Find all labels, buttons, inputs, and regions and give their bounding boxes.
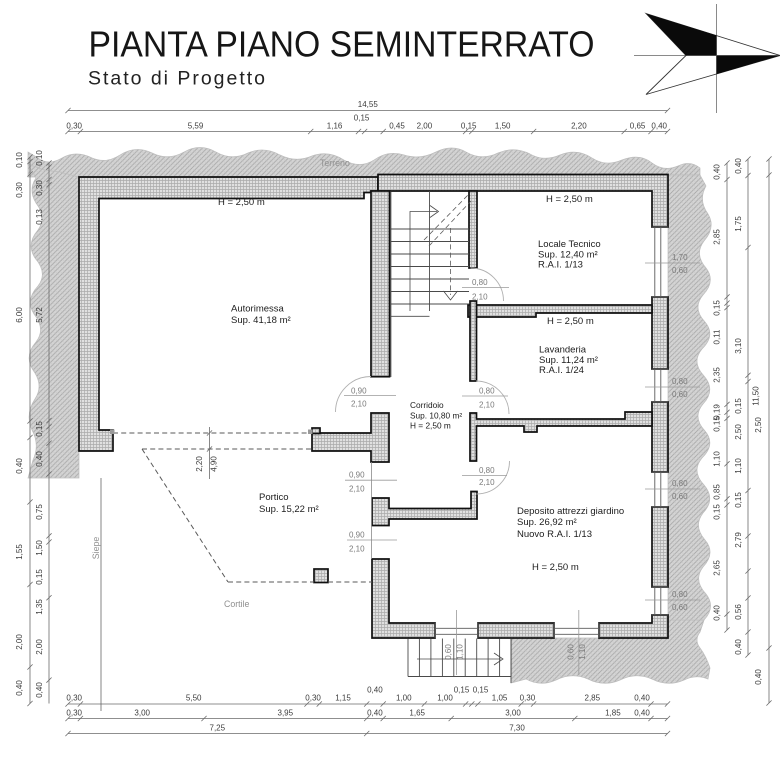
svg-text:2,10: 2,10 bbox=[479, 401, 495, 410]
svg-text:2,20: 2,20 bbox=[571, 122, 587, 131]
svg-text:0,80: 0,80 bbox=[672, 377, 688, 386]
svg-text:1,10: 1,10 bbox=[456, 644, 465, 660]
svg-text:1,35: 1,35 bbox=[35, 599, 44, 615]
svg-text:3,10: 3,10 bbox=[734, 338, 743, 354]
svg-text:14,55: 14,55 bbox=[358, 100, 379, 109]
svg-text:0,60: 0,60 bbox=[567, 644, 576, 660]
svg-text:0,85: 0,85 bbox=[713, 484, 722, 500]
svg-text:Sup. 41,18 m²: Sup. 41,18 m² bbox=[231, 315, 291, 326]
svg-text:0,15: 0,15 bbox=[713, 300, 722, 316]
svg-text:2,65: 2,65 bbox=[713, 560, 722, 576]
svg-text:0,80: 0,80 bbox=[672, 590, 688, 599]
svg-text:H = 2,50 m: H = 2,50 m bbox=[218, 197, 265, 208]
svg-text:0,15: 0,15 bbox=[473, 686, 489, 695]
svg-text:0,40: 0,40 bbox=[367, 709, 383, 718]
svg-text:Autorimessa: Autorimessa bbox=[231, 304, 285, 315]
svg-text:0,90: 0,90 bbox=[349, 471, 365, 480]
svg-text:2,00: 2,00 bbox=[15, 634, 24, 650]
svg-text:0,40: 0,40 bbox=[367, 686, 383, 695]
svg-text:3,95: 3,95 bbox=[278, 709, 294, 718]
svg-text:0,90: 0,90 bbox=[349, 531, 365, 540]
svg-text:0,90: 0,90 bbox=[351, 387, 367, 396]
svg-text:0,56: 0,56 bbox=[734, 604, 743, 620]
svg-text:1,10: 1,10 bbox=[578, 644, 587, 660]
svg-text:0,15: 0,15 bbox=[713, 416, 722, 432]
svg-text:1,00: 1,00 bbox=[437, 694, 453, 703]
svg-text:Sup. 10,80 m²: Sup. 10,80 m² bbox=[410, 411, 462, 421]
svg-text:PIANTA PIANO SEMINTERRATO: PIANTA PIANO SEMINTERRATO bbox=[89, 24, 595, 65]
svg-text:2,10: 2,10 bbox=[349, 545, 365, 554]
svg-text:0,30: 0,30 bbox=[66, 709, 82, 718]
svg-text:5,50: 5,50 bbox=[186, 694, 202, 703]
svg-text:0,15: 0,15 bbox=[35, 569, 44, 585]
svg-text:0,40: 0,40 bbox=[734, 639, 743, 655]
svg-text:0,80: 0,80 bbox=[479, 387, 495, 396]
svg-text:0,40: 0,40 bbox=[713, 164, 722, 180]
svg-text:2,50: 2,50 bbox=[734, 424, 743, 440]
svg-text:Nuovo R.A.I. 1/13: Nuovo R.A.I. 1/13 bbox=[517, 529, 592, 540]
svg-text:0,30: 0,30 bbox=[15, 182, 24, 198]
svg-text:0,65: 0,65 bbox=[630, 122, 646, 131]
svg-text:2,85: 2,85 bbox=[585, 694, 601, 703]
svg-text:0,30: 0,30 bbox=[305, 694, 321, 703]
svg-text:1,00: 1,00 bbox=[396, 694, 412, 703]
svg-text:2,35: 2,35 bbox=[713, 367, 722, 383]
svg-text:1,05: 1,05 bbox=[492, 694, 508, 703]
svg-text:0,75: 0,75 bbox=[35, 504, 44, 520]
svg-text:R.A.I. 1/13: R.A.I. 1/13 bbox=[538, 260, 583, 271]
svg-text:0,10: 0,10 bbox=[15, 152, 24, 168]
svg-text:Corridoio: Corridoio bbox=[410, 400, 444, 410]
svg-text:Sup. 26,92 m²: Sup. 26,92 m² bbox=[517, 517, 577, 528]
svg-text:2,10: 2,10 bbox=[479, 478, 495, 487]
svg-text:0,15: 0,15 bbox=[734, 492, 743, 508]
svg-text:1,16: 1,16 bbox=[327, 122, 343, 131]
svg-text:1,85: 1,85 bbox=[605, 709, 621, 718]
svg-text:1,75: 1,75 bbox=[734, 216, 743, 232]
svg-text:3,00: 3,00 bbox=[505, 709, 521, 718]
svg-text:1,65: 1,65 bbox=[409, 709, 425, 718]
svg-text:Portico: Portico bbox=[259, 492, 289, 503]
svg-text:2,10: 2,10 bbox=[351, 400, 367, 409]
svg-text:0,40: 0,40 bbox=[734, 158, 743, 174]
svg-text:5,59: 5,59 bbox=[188, 122, 204, 131]
svg-text:2,79: 2,79 bbox=[734, 532, 743, 548]
svg-text:Locale Tecnico: Locale Tecnico bbox=[538, 239, 601, 250]
svg-text:Sup. 15,22 m²: Sup. 15,22 m² bbox=[259, 504, 319, 515]
svg-text:0,30: 0,30 bbox=[520, 694, 536, 703]
svg-text:0,15: 0,15 bbox=[35, 421, 44, 437]
svg-text:0,40: 0,40 bbox=[15, 458, 24, 474]
svg-text:R.A.I. 1/24: R.A.I. 1/24 bbox=[539, 365, 584, 376]
svg-text:0,15: 0,15 bbox=[354, 114, 370, 123]
svg-text:0,60: 0,60 bbox=[672, 492, 688, 501]
svg-text:Stato di Progetto: Stato di Progetto bbox=[88, 68, 265, 90]
svg-text:5,72: 5,72 bbox=[35, 307, 44, 323]
svg-text:4,90: 4,90 bbox=[210, 456, 219, 472]
svg-text:1,50: 1,50 bbox=[35, 540, 44, 556]
svg-text:2,00: 2,00 bbox=[35, 639, 44, 655]
svg-text:H = 2,50 m: H = 2,50 m bbox=[547, 316, 594, 327]
svg-text:0,15: 0,15 bbox=[713, 504, 722, 520]
svg-text:0,80: 0,80 bbox=[672, 479, 688, 488]
svg-text:1,55: 1,55 bbox=[15, 544, 24, 560]
svg-text:1,50: 1,50 bbox=[495, 122, 511, 131]
svg-text:0,60: 0,60 bbox=[444, 644, 453, 660]
svg-text:Lavanderia: Lavanderia bbox=[539, 345, 587, 356]
svg-text:2,10: 2,10 bbox=[349, 485, 365, 494]
svg-text:H = 2,50 m: H = 2,50 m bbox=[410, 421, 451, 431]
svg-text:0,40: 0,40 bbox=[35, 451, 44, 467]
svg-text:0,40: 0,40 bbox=[15, 680, 24, 696]
svg-text:1,10: 1,10 bbox=[713, 451, 722, 467]
svg-text:0,80: 0,80 bbox=[479, 466, 495, 475]
svg-text:Deposito attrezzi giardino: Deposito attrezzi giardino bbox=[517, 506, 624, 517]
svg-text:0,15: 0,15 bbox=[454, 686, 470, 695]
svg-text:2,85: 2,85 bbox=[713, 229, 722, 245]
svg-text:7,25: 7,25 bbox=[210, 724, 226, 733]
svg-text:0,30: 0,30 bbox=[66, 694, 82, 703]
svg-text:0,80: 0,80 bbox=[472, 278, 488, 287]
svg-text:1,70: 1,70 bbox=[672, 253, 688, 262]
svg-text:Siepe: Siepe bbox=[91, 537, 101, 560]
svg-text:H = 2,50 m: H = 2,50 m bbox=[546, 194, 593, 205]
svg-text:0,45: 0,45 bbox=[389, 122, 405, 131]
svg-text:11,50: 11,50 bbox=[752, 386, 761, 406]
svg-text:Terreno: Terreno bbox=[320, 158, 350, 168]
svg-text:Cortile: Cortile bbox=[224, 599, 250, 609]
svg-text:0,13: 0,13 bbox=[35, 209, 44, 225]
svg-text:0,15: 0,15 bbox=[734, 398, 743, 414]
svg-text:0,60: 0,60 bbox=[672, 266, 688, 275]
svg-text:6,00: 6,00 bbox=[15, 307, 24, 323]
svg-text:7,30: 7,30 bbox=[509, 724, 525, 733]
svg-text:0,15: 0,15 bbox=[461, 122, 477, 131]
svg-text:0,40: 0,40 bbox=[713, 605, 722, 621]
svg-text:0,11: 0,11 bbox=[713, 329, 722, 345]
svg-text:H = 2,50 m: H = 2,50 m bbox=[532, 562, 579, 573]
svg-text:2,50: 2,50 bbox=[754, 417, 763, 433]
svg-text:0,60: 0,60 bbox=[672, 390, 688, 399]
svg-text:2,00: 2,00 bbox=[417, 122, 433, 131]
svg-text:0,40: 0,40 bbox=[651, 122, 667, 131]
svg-text:1,15: 1,15 bbox=[335, 694, 351, 703]
svg-text:0,60: 0,60 bbox=[672, 603, 688, 612]
svg-text:0,40: 0,40 bbox=[35, 682, 44, 698]
svg-text:0,30: 0,30 bbox=[35, 180, 44, 196]
svg-text:0,30: 0,30 bbox=[66, 122, 82, 131]
svg-text:3,00: 3,00 bbox=[134, 709, 150, 718]
svg-text:2,10: 2,10 bbox=[472, 293, 488, 302]
svg-text:2,20: 2,20 bbox=[195, 456, 204, 472]
svg-text:1,10: 1,10 bbox=[734, 458, 743, 474]
svg-text:0,40: 0,40 bbox=[634, 709, 650, 718]
svg-text:0,40: 0,40 bbox=[754, 669, 763, 685]
svg-text:0,10: 0,10 bbox=[35, 150, 44, 166]
svg-text:0,40: 0,40 bbox=[634, 694, 650, 703]
